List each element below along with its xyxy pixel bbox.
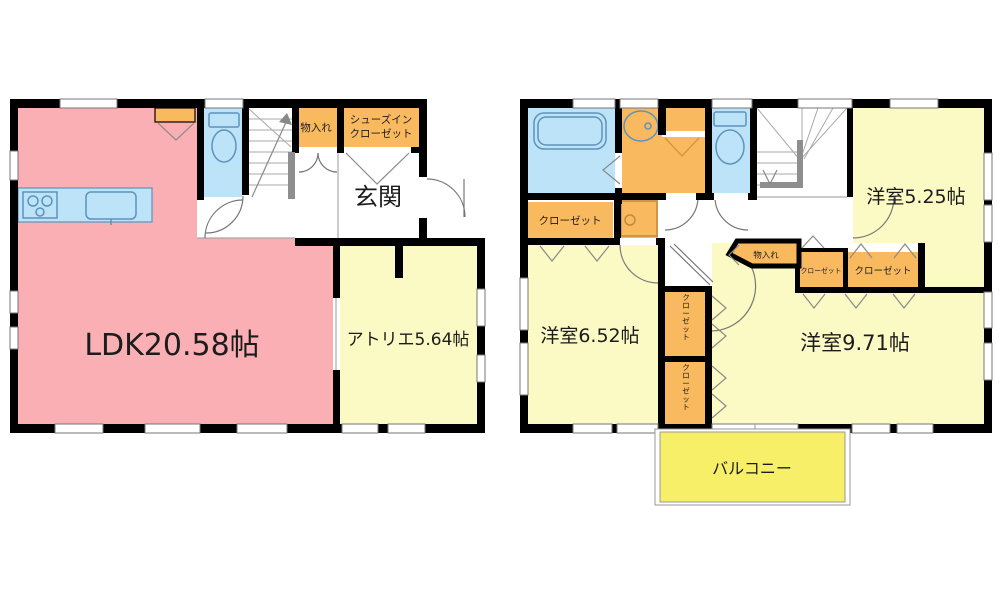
monoire-label-2f: 物入れ [753, 250, 779, 261]
closet-v2-label: クローゼット [682, 363, 690, 411]
bedroom652-label: 洋室6.52帖 [540, 325, 639, 347]
stair-handrail-1f [288, 152, 295, 199]
kitchen-counter [18, 188, 152, 225]
closet-bath-label: クローゼット [539, 215, 602, 227]
laundry-space [618, 200, 658, 238]
shoes-closet-label-line2: クローゼット [350, 128, 413, 140]
stair-handrail-2f [797, 140, 803, 188]
bathroom [528, 108, 615, 195]
ldk-label: LDK20.58帖 [84, 328, 259, 363]
closet-v1-label: クローゼット [682, 293, 690, 341]
pantry-cabinet [155, 108, 195, 122]
atelier-label: アトリエ5.64帖 [347, 330, 470, 350]
bedroom525-label: 洋室5.25帖 [866, 186, 965, 208]
floor-plan-page: LDK20.58帖 アトリエ5.64帖 玄関 物入れ シューズイン クローゼット [0, 0, 1000, 600]
bedroom-525 [853, 108, 984, 243]
floor-plan-drawing: LDK20.58帖 アトリエ5.64帖 玄関 物入れ シューズイン クローゼット [0, 0, 1000, 600]
shoes-closet-label-line1: シューズイン [350, 113, 412, 126]
hall-wedge [663, 243, 712, 288]
monoire-label-1f: 物入れ [300, 121, 332, 134]
genkan-label: 玄関 [354, 183, 402, 211]
balcony-label: バルコニー [712, 459, 792, 478]
bedroom971-label: 洋室9.71帖 [800, 331, 910, 355]
closet-small-label: クローゼット [801, 266, 842, 275]
floor1-plan: LDK20.58帖 アトリエ5.64帖 玄関 物入れ シューズイン クローゼット [10, 99, 485, 433]
closet-525-label: クローゼット [854, 265, 911, 277]
